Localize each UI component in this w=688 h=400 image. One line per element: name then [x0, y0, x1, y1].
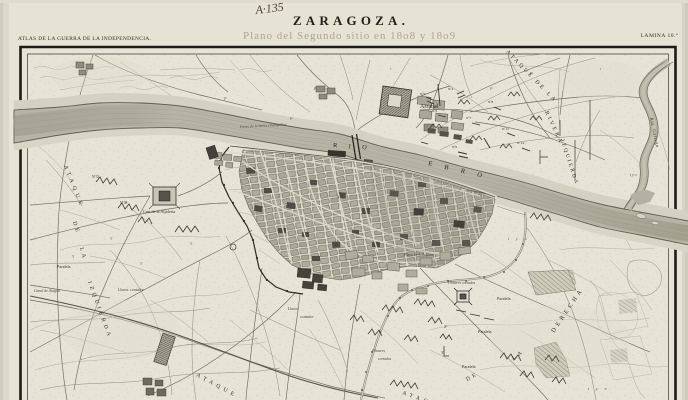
svg-text:Nº8: Nº8 — [488, 100, 493, 104]
svg-text:Plano del Segundo sitio en 18o: Plano del Segundo sitio en 18o8 y 18o9 — [243, 30, 456, 42]
svg-text:P: P — [529, 71, 533, 76]
svg-text:t y o: t y o — [508, 237, 530, 241]
svg-text:Canal de Aragon: Canal de Aragon — [34, 289, 60, 293]
svg-text:Paralela: Paralela — [478, 329, 492, 334]
svg-text:Nº7: Nº7 — [466, 116, 471, 120]
svg-text:Nº12: Nº12 — [502, 127, 509, 131]
svg-text:t y o: t y o — [630, 173, 637, 177]
svg-text:Nº4: Nº4 — [448, 87, 453, 91]
svg-text:Nº14: Nº14 — [517, 141, 524, 145]
svg-text:Nº6: Nº6 — [432, 109, 437, 113]
svg-text:ATLAS DE LA GUERRA DE LA INDEP: ATLAS DE LA GUERRA DE LA INDEPENDENCIA. — [18, 36, 151, 42]
svg-text:Paralela: Paralela — [497, 296, 511, 301]
svg-text:Olivares: Olivares — [372, 349, 385, 353]
svg-text:P: P — [489, 86, 493, 91]
svg-text:Nº31: Nº31 — [92, 175, 100, 179]
svg-text:Plano de S. Agustin: Plano de S. Agustin — [403, 253, 434, 257]
svg-text:Cast.de la Aljaferia: Cast.de la Aljaferia — [143, 209, 175, 214]
svg-text:ZARAGOZA.: ZARAGOZA. — [293, 13, 409, 28]
svg-text:LAMINA 10.ª: LAMINA 10.ª — [641, 33, 679, 39]
svg-text:Nº5: Nº5 — [420, 92, 425, 96]
svg-text:Olivares cortados: Olivares cortados — [448, 281, 476, 285]
svg-text:Llanos: Llanos — [287, 307, 299, 311]
svg-text:P: P — [223, 96, 227, 101]
svg-text:Llanos contador: Llanos contador — [117, 288, 144, 292]
svg-text:cortados: cortados — [378, 357, 392, 361]
svg-text:t y o: t y o — [588, 387, 610, 391]
svg-text:Paralela: Paralela — [462, 364, 476, 369]
svg-text:Nº38: Nº38 — [120, 201, 128, 205]
svg-text:Nº9: Nº9 — [452, 145, 457, 149]
svg-text:P: P — [289, 116, 293, 121]
svg-text:contador: contador — [300, 315, 314, 319]
svg-text:Paralela: Paralela — [57, 264, 71, 269]
